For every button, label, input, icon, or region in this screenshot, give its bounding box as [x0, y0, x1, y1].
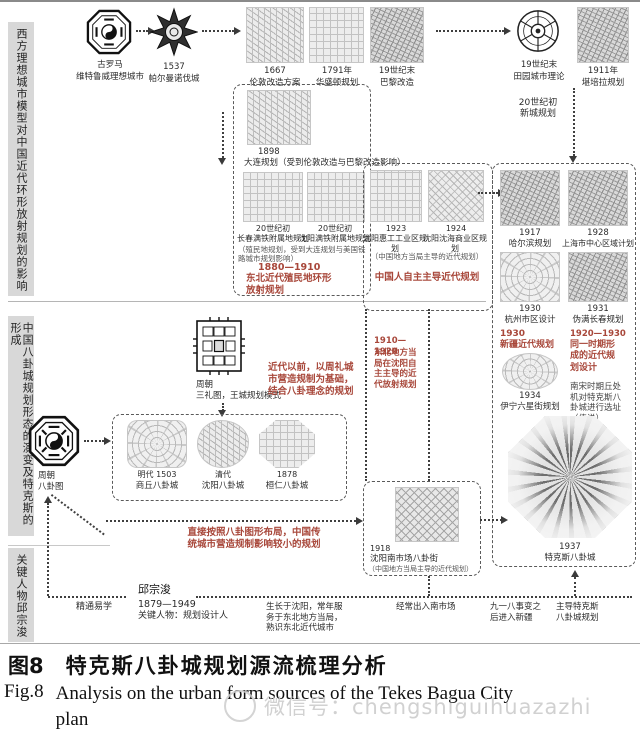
sanli-diagram-icon — [192, 315, 246, 381]
person-line-left — [48, 596, 126, 598]
market-note: （中国地方当局主导的近代规划） — [368, 565, 480, 574]
xinjiang-period: 1930 — [500, 329, 560, 340]
corridor-right — [428, 309, 430, 481]
market-date: 1918 — [370, 544, 410, 554]
diagonal-connector — [51, 494, 105, 535]
market-person-connector — [428, 576, 430, 596]
same-period: 1920—1930 — [570, 329, 632, 340]
flow-arrow-3 — [436, 30, 504, 32]
caption-en-line2: plan — [56, 709, 89, 730]
sanli-date: 周朝 — [196, 380, 256, 391]
selfled-note: （中国地方当局主导的近代规划） — [368, 252, 486, 261]
paris-label: 巴黎改造 — [366, 78, 428, 89]
shangqiu-label: 商丘八卦城 — [122, 481, 192, 492]
caption-divider — [0, 643, 640, 644]
premodern-note: 近代以前，以周礼城市营造规制为基础，结合八卦理念的规划 — [268, 362, 360, 398]
paris-date: 19世纪末 — [362, 66, 432, 77]
yining-date: 1934 — [500, 391, 560, 402]
watermark-text: 微信号：chengshiguihuazazhi — [264, 691, 592, 721]
market-label: 沈阳南市场八卦街 — [370, 554, 476, 565]
caption-en-tag: Fig.8 — [4, 681, 44, 732]
selfled-title: 中国人自主主导近代规划 — [370, 272, 484, 284]
bagua-to-cities-arrow — [84, 440, 104, 442]
london-date: 1667 — [240, 66, 310, 77]
map-thumb-huanren — [259, 420, 315, 468]
yixue-label: 精通易学 — [64, 602, 124, 613]
shenyang-mantetsu-date: 20世纪初 — [303, 224, 367, 234]
map-thumb-london — [246, 7, 304, 63]
section-divider-2 — [8, 545, 110, 546]
arrowhead — [504, 27, 511, 35]
bagua-octagon-icon — [86, 9, 132, 59]
dalian-influence-connector — [222, 112, 224, 158]
corridor-left — [365, 309, 367, 481]
map-thumb-dalian — [247, 90, 311, 145]
qing-shenyang-label: 沈阳八卦城 — [191, 481, 255, 492]
watermark: 微信号：chengshiguihuazazhi — [224, 690, 592, 722]
map-thumb-canberra — [577, 7, 629, 63]
sidebar-band-western-models: 西方理想城市模型对中国近代环形放射规划的影响 — [8, 22, 34, 296]
radial-title: 东北地方当局在沈阳自主主导的近代放射规划 — [374, 348, 420, 391]
garden-city-wheel-icon — [515, 8, 561, 58]
harbin-label: 哈尔滨规划 — [496, 239, 564, 250]
caption-zh-tag: 图8 — [8, 650, 44, 680]
map-thumb-shanghai — [568, 170, 628, 226]
map-thumb-harbin — [500, 170, 560, 226]
figure-canvas: 西方理想城市模型对中国近代环形放射规划的影响 中国八卦城规划形态的演变及特克斯的… — [0, 0, 640, 736]
direct-note: 直接按照八卦图形布局，中国传统城市营造规制影响较小的规划 — [186, 527, 322, 551]
direct-path-line — [106, 520, 356, 522]
zhou-bagua-icon — [28, 415, 80, 471]
map-thumb-shangqiu — [127, 420, 187, 468]
arrowhead — [571, 570, 579, 577]
person-years: 1879—1949 — [138, 599, 218, 611]
shenhai-label: 沈阳沈海商业区规划 — [420, 234, 490, 254]
changchun-1931-label: 伪满长春规划 — [562, 315, 634, 326]
xinjiang-title: 新疆近代规划 — [500, 340, 564, 351]
person-incident: 九一八事变之后进入新疆 — [490, 602, 544, 623]
colonial-note: （殖民地规划，受到大连规划与美国铁路城市规划影响） — [238, 245, 366, 264]
panel-entry-arrow — [478, 192, 498, 194]
garden-date: 19世纪末 — [506, 60, 572, 71]
map-thumb-changchun-1931 — [568, 252, 628, 302]
person-line-right — [196, 596, 632, 598]
shanghai-label: 上海市中心区域计划 — [558, 239, 638, 249]
map-thumb-shenyang-mantetsu — [307, 172, 365, 222]
hangzhou-date: 1930 — [498, 304, 562, 315]
shenhai-date: 1924 — [426, 224, 486, 234]
map-thumb-shenhai — [428, 170, 484, 222]
person-name: 邱宗浚 — [138, 583, 208, 597]
caption-zh-title: 特克斯八卦城规划源流梳理分析 — [66, 650, 388, 680]
arrowhead — [501, 516, 508, 524]
harbin-date: 1917 — [498, 228, 562, 239]
qing-shenyang-date: 清代 — [195, 470, 251, 480]
hangzhou-label: 杭州市区设计 — [496, 315, 564, 326]
newtown-note: 20世纪初 新城规划 — [506, 98, 570, 121]
palmanova-date: 1537 — [132, 62, 216, 73]
flow-arrow-1 — [136, 30, 148, 32]
canberra-date: 1911年 — [570, 66, 636, 77]
huanren-label: 桓仁八卦城 — [254, 481, 320, 492]
market-to-panel-line — [480, 519, 502, 521]
sidebar-band-label: 关键人物邱宗浚 — [15, 554, 27, 642]
yining-label: 伊宁六星街规划 — [492, 402, 568, 413]
map-thumb-hangzhou — [500, 252, 560, 302]
arrowhead — [569, 156, 577, 163]
flow-arrow-2 — [202, 30, 234, 32]
arrowhead — [234, 27, 241, 35]
shangqiu-date: 明代 1503 — [122, 470, 192, 480]
garden-label: 田园城市理论 — [500, 72, 578, 83]
map-thumb-changchun-mantetsu — [243, 172, 303, 222]
person-grow: 生长于沈阳，常年服务于东北地方当局，熟识东北近代城市 — [266, 602, 346, 634]
changchun-1931-date: 1931 — [566, 304, 630, 315]
yixue-connector — [47, 503, 49, 596]
arrowhead — [356, 517, 363, 525]
huigong-date: 1923 — [366, 224, 426, 234]
map-thumb-yining — [502, 353, 558, 390]
newtown-connector — [573, 88, 575, 156]
map-thumb-paris — [370, 7, 424, 63]
map-thumb-south-market — [395, 487, 459, 542]
same-title: 同一时期形成的近代规划设计 — [570, 340, 620, 374]
sidebar-band-label: 西方理想城市模型对中国近代环形放射规划的影响 — [15, 28, 27, 296]
person-role: 关键人物：规划设计人 — [138, 611, 250, 622]
canberra-label: 堪培拉规划 — [570, 78, 636, 89]
tekes-date: 1937 — [520, 542, 620, 553]
palmanova-label: 帕尔曼诺伐城 — [126, 74, 222, 85]
person-lead: 主导特克斯八卦城规划 — [556, 602, 602, 623]
colonial-title: 东北近代殖民地环形放射规划 — [246, 273, 338, 297]
arrowhead — [104, 437, 111, 445]
map-thumb-washington — [309, 7, 364, 63]
huanren-date: 1878 — [258, 470, 316, 480]
person-market: 经常出入南市场 — [396, 602, 462, 613]
watermark-logo-icon — [224, 690, 256, 722]
lead-connector — [574, 577, 576, 596]
caption-zh: 图8 特克斯八卦城规划源流梳理分析 — [8, 650, 388, 680]
arrowhead — [218, 158, 226, 165]
changchun-mantetsu-date: 20世纪初 — [240, 224, 306, 234]
zhou-bagua-date: 周朝 — [38, 471, 78, 482]
dalian-date: 1898 — [258, 147, 318, 158]
tekes-label: 特克斯八卦城 — [520, 553, 620, 564]
shanghai-date: 1928 — [566, 228, 630, 239]
arrowhead — [44, 496, 52, 503]
map-thumb-huigong — [370, 170, 422, 222]
top-border-line — [0, 0, 640, 2]
star-fortress-icon — [150, 6, 198, 62]
zhou-bagua-label: 八卦图 — [38, 482, 88, 493]
sidebar-band-key-person: 关键人物邱宗浚 — [8, 548, 34, 642]
